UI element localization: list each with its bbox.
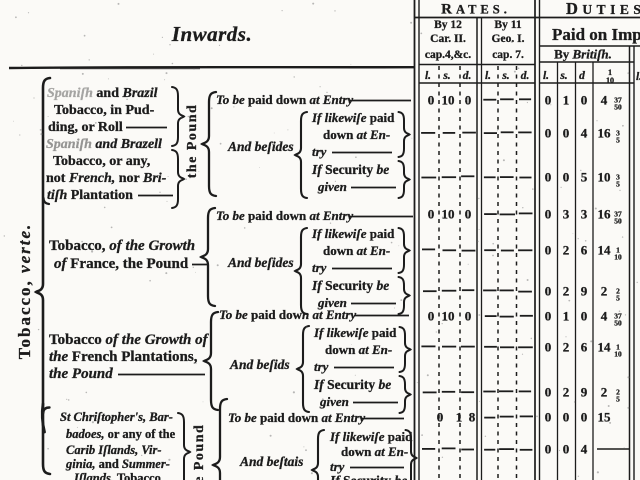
svg-text:10: 10	[442, 309, 455, 324]
svg-text:By Britiſh.: By Britiſh.	[554, 47, 612, 62]
svg-text:0: 0	[581, 410, 588, 425]
svg-text:To be paid down at Entry: To be paid down at Entry	[228, 410, 365, 425]
svg-text:2: 2	[563, 340, 570, 355]
svg-text:If likewiſe paid: If likewiſe paid	[311, 110, 395, 125]
svg-text:If likewiſe paid: If likewiſe paid	[313, 325, 397, 340]
svg-text:6: 6	[581, 243, 588, 258]
svg-text:16: 16	[598, 207, 612, 222]
svg-text:3: 3	[563, 207, 570, 222]
svg-text:given: given	[319, 394, 349, 409]
svg-text:5: 5	[581, 170, 588, 185]
svg-text:0: 0	[545, 309, 552, 324]
svg-text:0: 0	[581, 93, 588, 108]
svg-text:d.: d.	[463, 70, 472, 82]
svg-text:3: 3	[581, 207, 588, 222]
svg-text:0: 0	[545, 207, 552, 222]
svg-text:given: given	[317, 179, 347, 194]
svg-text:l.: l.	[485, 70, 491, 82]
svg-text:10: 10	[598, 170, 611, 185]
svg-text:2: 2	[563, 284, 570, 299]
svg-text:down at En-: down at En-	[341, 444, 408, 459]
svg-text:5: 5	[616, 395, 620, 404]
svg-text:9: 9	[581, 284, 588, 299]
svg-text:not French, nor Bri-: not French, nor Bri-	[46, 171, 167, 186]
svg-text:Tobacco of the Growth of: Tobacco of the Growth of	[49, 332, 210, 348]
svg-text:down at En-: down at En-	[323, 127, 390, 142]
svg-text:down at En-: down at En-	[323, 243, 390, 258]
svg-text:To be paid down at Entry: To be paid down at Entry	[216, 92, 353, 107]
svg-text:0: 0	[465, 207, 472, 222]
svg-text:Paid on Imp: Paid on Imp	[552, 25, 640, 44]
svg-text:s.: s.	[559, 70, 567, 82]
svg-text:try: try	[312, 144, 327, 159]
svg-text:0: 0	[563, 442, 570, 457]
svg-text:badoes, or any of the: badoes, or any of the	[66, 427, 176, 441]
svg-text:Car. II.: Car. II.	[430, 33, 466, 45]
svg-text:8: 8	[469, 410, 476, 425]
svg-text:Iſlands, Tobacco: Iſlands, Tobacco	[73, 471, 161, 480]
svg-text:10: 10	[614, 253, 622, 262]
svg-text:l.: l.	[636, 71, 640, 83]
svg-text:tiſh Plantation: tiſh Plantation	[47, 188, 133, 203]
svg-text:RATES.: RATES.	[441, 2, 511, 18]
svg-text:0: 0	[545, 170, 552, 185]
svg-text:the Pound: the Pound	[49, 366, 113, 382]
svg-text:1: 1	[563, 309, 570, 324]
svg-text:Tobacco, of the Growth: Tobacco, of the Growth	[49, 238, 195, 254]
svg-text:And beſtais: And beſtais	[239, 454, 303, 469]
svg-text:By 11: By 11	[494, 19, 521, 31]
svg-text:ding, or Roll: ding, or Roll	[48, 120, 123, 135]
svg-text:0: 0	[545, 126, 552, 141]
svg-text:If Security be: If Security be	[329, 473, 407, 480]
svg-text:ginia, and Summer-: ginia, and Summer-	[65, 457, 170, 471]
svg-text:0: 0	[563, 410, 570, 425]
svg-text:try: try	[312, 260, 327, 275]
svg-text:0: 0	[428, 93, 435, 108]
svg-text:0: 0	[545, 284, 552, 299]
svg-text:2: 2	[601, 385, 608, 400]
svg-text:9: 9	[581, 385, 588, 400]
svg-text:of France, the Pound: of France, the Pound	[54, 256, 189, 272]
svg-text:10: 10	[442, 93, 455, 108]
svg-text:2: 2	[601, 284, 608, 299]
svg-text:0: 0	[465, 309, 472, 324]
svg-text:10: 10	[614, 350, 622, 359]
svg-text:50: 50	[614, 103, 622, 112]
svg-text:the Pound: the Pound	[192, 424, 207, 480]
svg-text:14: 14	[598, 243, 612, 258]
svg-text:l.: l.	[543, 70, 549, 82]
svg-text:Spaniſh and Brazil: Spaniſh and Brazil	[47, 86, 158, 101]
svg-text:0: 0	[563, 126, 570, 141]
svg-text:4: 4	[581, 442, 588, 457]
svg-text:Carib Iſlands, Vir-: Carib Iſlands, Vir-	[66, 443, 162, 457]
svg-text:Inwards.: Inwards.	[171, 22, 252, 46]
svg-text:down at En-: down at En-	[325, 342, 392, 357]
svg-text:the French Plantations,: the French Plantations,	[49, 349, 198, 365]
svg-text:4: 4	[601, 309, 608, 324]
svg-text:10: 10	[442, 207, 455, 222]
svg-text:And beſides: And beſides	[227, 255, 294, 270]
svg-text:cap. 7.: cap. 7.	[492, 49, 524, 61]
svg-text:0: 0	[563, 170, 570, 185]
svg-text:6: 6	[581, 340, 588, 355]
svg-text:4: 4	[581, 126, 588, 141]
svg-text:10: 10	[606, 76, 614, 85]
svg-text:If Security be: If Security be	[311, 278, 389, 293]
svg-text:DUTIES: DUTIES	[566, 0, 640, 18]
svg-text:If likewiſe paid: If likewiſe paid	[329, 429, 413, 444]
svg-text:cap.4,&c.: cap.4,&c.	[425, 49, 471, 61]
svg-text:5: 5	[616, 136, 620, 145]
svg-text:d.: d.	[521, 70, 530, 82]
svg-text:the Pound: the Pound	[185, 104, 200, 179]
svg-text:0: 0	[428, 207, 435, 222]
svg-text:If likewiſe paid: If likewiſe paid	[311, 226, 395, 241]
svg-text:If Security be: If Security be	[311, 162, 389, 177]
svg-text:try: try	[314, 359, 329, 374]
svg-text:4: 4	[601, 93, 608, 108]
svg-text:0: 0	[581, 309, 588, 324]
svg-text:By 12: By 12	[434, 19, 462, 31]
svg-text:Geo. I.: Geo. I.	[492, 33, 525, 45]
svg-text:Tobacco, verte.: Tobacco, verte.	[15, 223, 34, 360]
svg-text:0: 0	[545, 243, 552, 258]
svg-text:0: 0	[545, 410, 552, 425]
svg-text:try: try	[330, 459, 345, 474]
svg-text:St Chriſtopher's, Bar-: St Chriſtopher's, Bar-	[60, 410, 173, 424]
svg-text:2: 2	[563, 385, 570, 400]
svg-text:0: 0	[545, 442, 552, 457]
svg-text:5: 5	[616, 180, 620, 189]
svg-text:2: 2	[563, 243, 570, 258]
svg-text:0: 0	[545, 340, 552, 355]
svg-text:50: 50	[614, 217, 622, 226]
svg-text:And beſides: And beſides	[227, 139, 294, 154]
svg-text:And beſids: And beſids	[229, 357, 290, 372]
svg-text:Spaniſh and Brazell: Spaniſh and Brazell	[46, 137, 162, 152]
svg-text:Tobacco, or any,: Tobacco, or any,	[53, 154, 150, 169]
svg-text:0: 0	[437, 410, 444, 425]
svg-text:0: 0	[545, 93, 552, 108]
svg-text:s.: s.	[442, 70, 450, 82]
svg-text:To be paid down at Entry: To be paid down at Entry	[216, 208, 353, 223]
svg-text:If Security be: If Security be	[313, 377, 391, 392]
svg-text:1: 1	[456, 410, 463, 425]
svg-text:16: 16	[598, 126, 612, 141]
svg-text:15: 15	[598, 410, 612, 425]
svg-text:l.: l.	[425, 70, 431, 82]
svg-text:5: 5	[616, 294, 620, 303]
svg-text:0: 0	[428, 309, 435, 324]
svg-text:d: d	[579, 70, 585, 82]
svg-text:50: 50	[614, 319, 622, 328]
svg-text:1: 1	[563, 93, 570, 108]
svg-text:Tobacco, in Pud-: Tobacco, in Pud-	[54, 103, 155, 118]
svg-text:0: 0	[545, 385, 552, 400]
svg-text:s.: s.	[501, 70, 509, 82]
svg-text:To be paid down at Entry: To be paid down at Entry	[219, 307, 356, 322]
